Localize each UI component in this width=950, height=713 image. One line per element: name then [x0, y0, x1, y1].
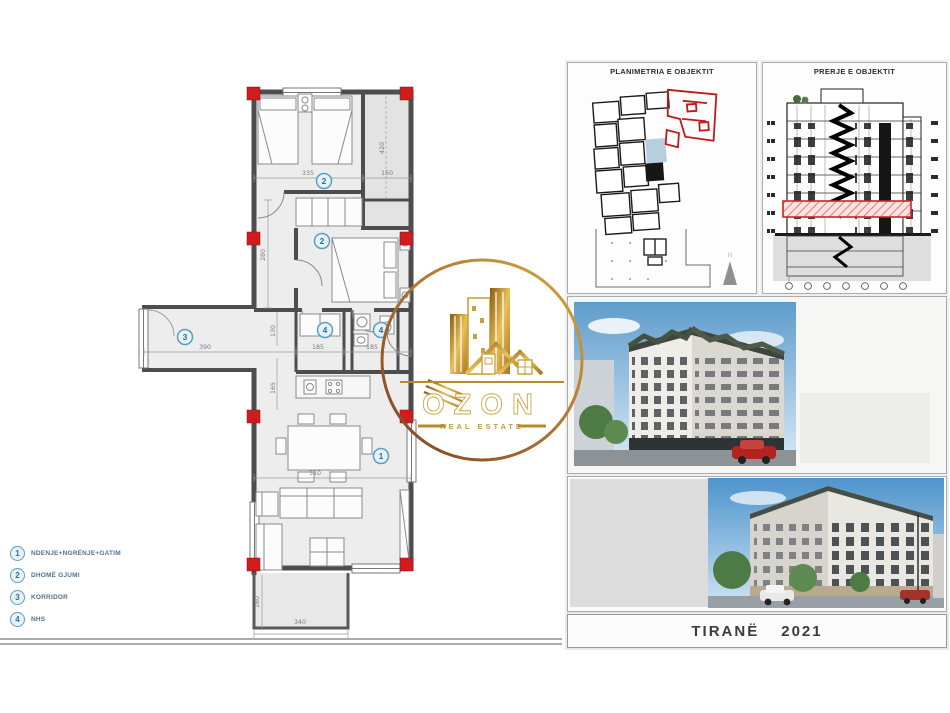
room-marker: 4	[10, 612, 25, 627]
dim-hall-height: 280	[260, 249, 267, 261]
blank-area	[570, 479, 708, 607]
caption-year: 2021	[781, 623, 822, 640]
legend-label: NDENJE+NGRËNJE+GATIM	[31, 550, 121, 557]
room-marker: 2	[10, 568, 25, 583]
legend-label: NHS	[31, 616, 45, 623]
building-render-1	[574, 302, 796, 466]
section-panel: PRERJE E OBJEKTIT	[762, 62, 947, 294]
room-legend: 1 NDENJE+NGRËNJE+GATIM 2 DHOMË GJUMI 3 K…	[10, 546, 210, 634]
elevator-shaft	[879, 123, 891, 235]
caption-city: TIRANË	[691, 623, 759, 640]
real-estate-flyer: 335 150 420 280 390 130 165 185 185 510 …	[0, 0, 950, 713]
tree	[604, 420, 628, 444]
courtyard	[645, 138, 667, 163]
render-photo-panel-2	[567, 476, 947, 612]
dim-corridor-width: 130	[270, 325, 277, 337]
room-marker-bedroom-top: 2	[317, 174, 332, 189]
basement-zone	[773, 235, 931, 281]
caption-box: TIRANË 2021	[567, 614, 947, 648]
logo-brand-text: OZON	[422, 389, 542, 421]
svg-text:2: 2	[320, 236, 325, 246]
dim-hall-width: 165	[270, 382, 277, 394]
legend-item: 1 NDENJE+NGRËNJE+GATIM	[10, 546, 210, 560]
dim-living-width: 510	[309, 470, 321, 477]
render-photo-panel-1	[567, 296, 947, 474]
highlighted-unit	[662, 86, 720, 148]
building-render-2	[708, 478, 944, 608]
north-arrow-icon: N	[723, 253, 737, 285]
section-drawing	[763, 79, 944, 291]
room-marker-bedroom-mid: 2	[315, 234, 330, 249]
site-plan-drawing: N	[568, 79, 754, 291]
dim-balcony-depth: 160	[254, 596, 261, 608]
legend-item: 4 NHS	[10, 612, 210, 626]
dim-bedroom-top-width: 335	[302, 170, 314, 177]
svg-text:N: N	[728, 253, 732, 259]
section-title: PRERJE E OBJEKTIT	[763, 67, 946, 76]
legend-item: 2 DHOMË GJUMI	[10, 568, 210, 582]
room-marker-corridor: 3	[178, 330, 193, 345]
stair-core	[645, 162, 664, 181]
faint-building	[800, 393, 930, 463]
svg-text:3: 3	[183, 332, 188, 342]
watermark-logo-icon: OZON REAL ESTATE	[370, 248, 594, 472]
site-plan-panel: PLANIMETRIA E OBJEKTIT	[567, 62, 757, 294]
legend-label: DHOMË GJUMI	[31, 572, 80, 579]
site-plan-title: PLANIMETRIA E OBJEKTIT	[568, 67, 756, 76]
svg-text:2: 2	[322, 176, 327, 186]
tree	[850, 572, 870, 592]
dim-shaft-height: 420	[379, 142, 386, 154]
logo-tagline-text: REAL ESTATE	[440, 422, 524, 431]
sheet-bottom-rule	[0, 638, 562, 645]
dim-bath-a: 185	[312, 344, 324, 351]
room-marker: 3	[10, 590, 25, 605]
neighbor-wall	[933, 534, 944, 598]
highlighted-floor-band	[783, 201, 911, 217]
svg-text:4: 4	[323, 325, 328, 335]
legend-label: KORRIDOR	[31, 594, 68, 601]
tree	[713, 551, 751, 589]
legend-item: 3 KORRIDOR	[10, 590, 210, 604]
room-marker-bath-a: 4	[318, 323, 333, 338]
dim-corridor-length: 390	[199, 344, 211, 351]
tree	[789, 564, 817, 592]
room-marker: 1	[10, 546, 25, 561]
ground-line	[775, 233, 931, 236]
dim-balcony-width: 340	[294, 619, 306, 626]
dim-shaft-width: 150	[381, 170, 393, 177]
main-building	[629, 328, 784, 452]
